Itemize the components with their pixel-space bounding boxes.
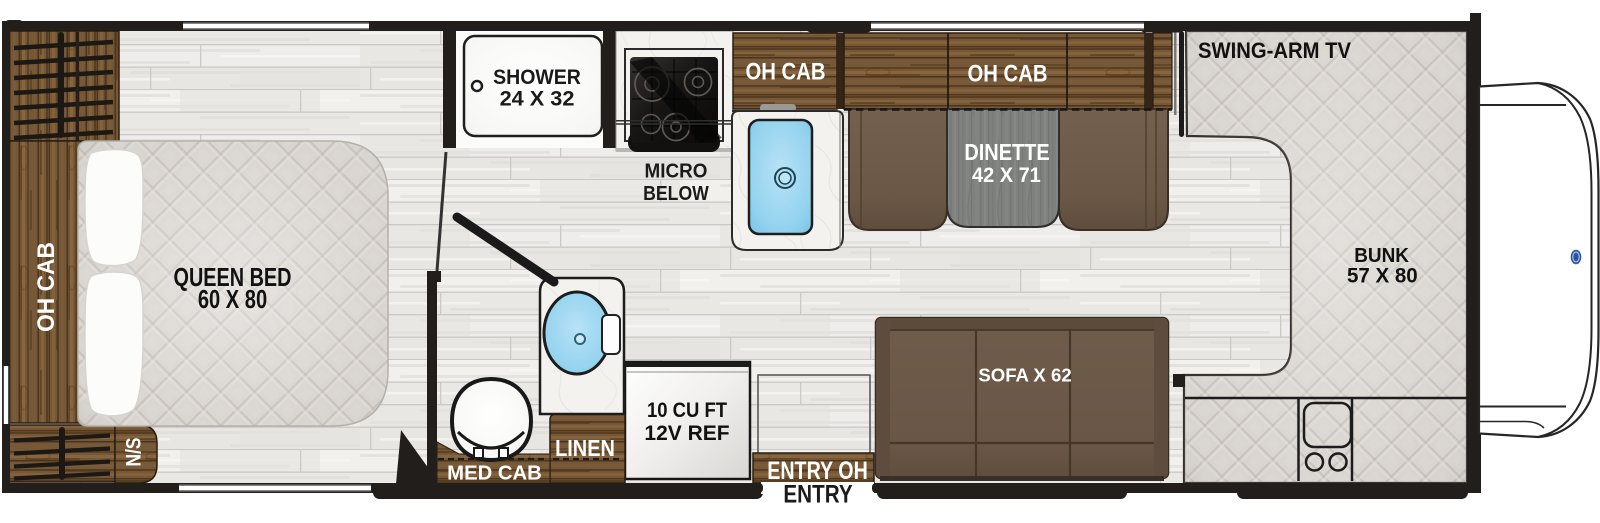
svg-text:DINETTE: DINETTE [964, 139, 1049, 166]
svg-text:LINEN: LINEN [555, 435, 615, 462]
svg-text:SOFA X 62: SOFA X 62 [978, 364, 1071, 385]
svg-text:BELOW: BELOW [643, 183, 709, 205]
svg-text:MED CAB: MED CAB [447, 463, 542, 485]
svg-text:24 X 32: 24 X 32 [500, 86, 575, 111]
svg-text:OH CAB: OH CAB [32, 242, 59, 332]
svg-text:SWING-ARM TV: SWING-ARM TV [1198, 38, 1352, 63]
svg-text:OH CAB: OH CAB [967, 60, 1047, 87]
svg-text:12V REF: 12V REF [644, 422, 729, 445]
svg-text:60 X 80: 60 X 80 [198, 284, 267, 313]
svg-text:ENTRY: ENTRY [783, 480, 852, 508]
svg-text:10 CU FT: 10 CU FT [647, 399, 727, 422]
svg-text:MICRO: MICRO [645, 160, 708, 183]
svg-text:57 X 80: 57 X 80 [1347, 264, 1418, 288]
svg-text:42 X 71: 42 X 71 [972, 163, 1041, 187]
svg-text:N/S: N/S [122, 438, 146, 467]
svg-text:OH CAB: OH CAB [745, 58, 825, 85]
